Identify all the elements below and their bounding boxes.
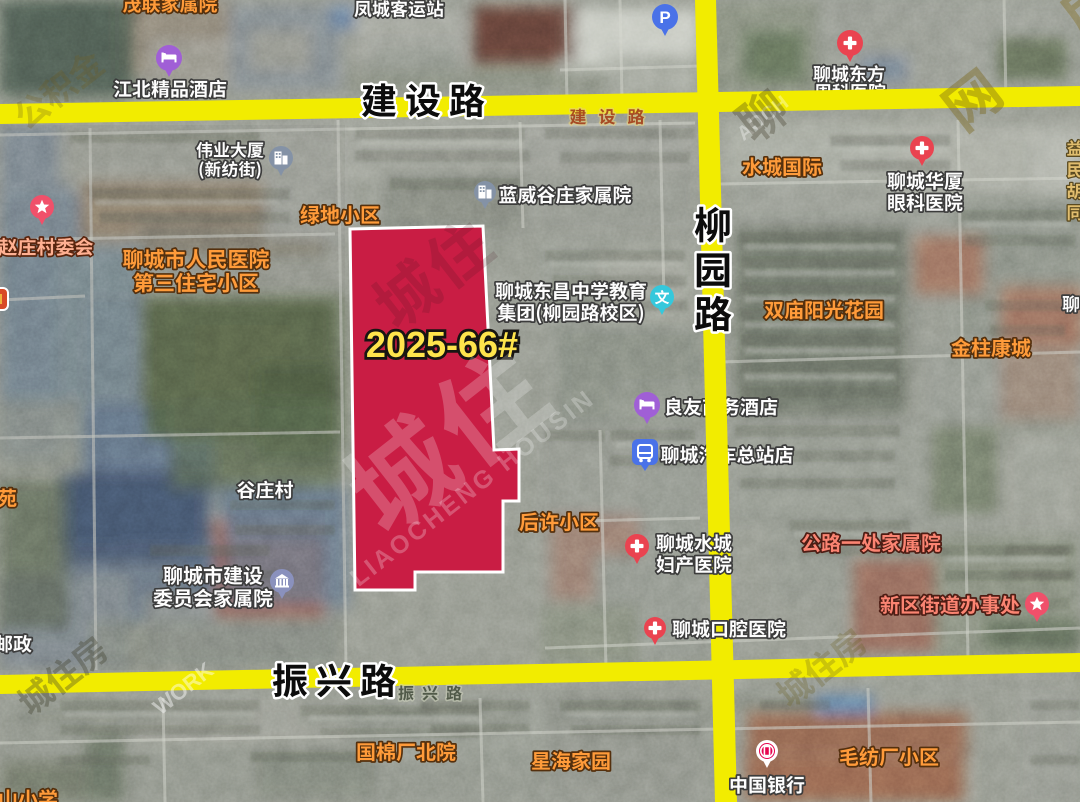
- svg-text:P: P: [659, 8, 670, 27]
